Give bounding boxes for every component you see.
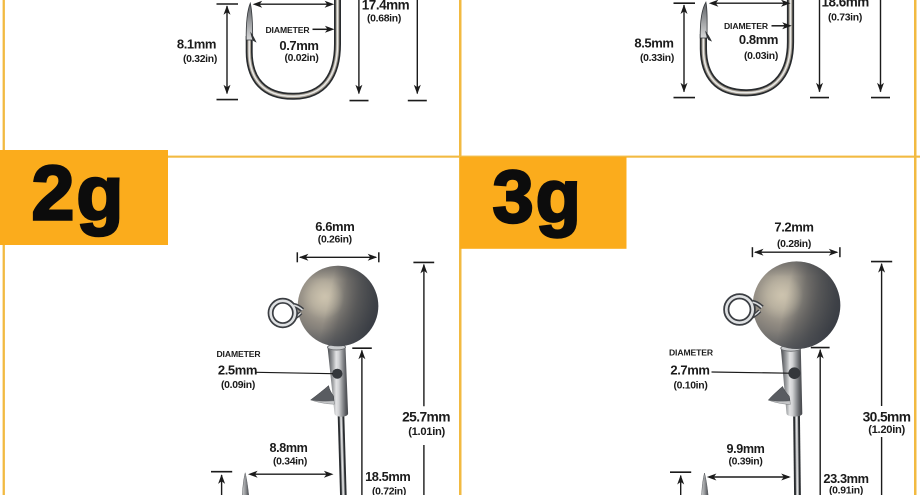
svg-text:18.6mm: 18.6mm xyxy=(822,0,870,10)
svg-text:(0.09in): (0.09in) xyxy=(221,380,255,391)
svg-text:DIAMETER: DIAMETER xyxy=(724,21,769,31)
svg-text:(0.03in): (0.03in) xyxy=(744,51,778,62)
svg-text:23.3mm: 23.3mm xyxy=(823,471,868,486)
svg-text:(0.26in): (0.26in) xyxy=(318,235,352,246)
svg-text:17.4mm: 17.4mm xyxy=(362,0,410,12)
svg-text:(0.68in): (0.68in) xyxy=(367,14,401,25)
svg-text:0.7mm: 0.7mm xyxy=(279,38,318,53)
svg-text:DIAMETER: DIAMETER xyxy=(265,25,310,35)
svg-text:(0.28in): (0.28in) xyxy=(777,239,811,250)
svg-text:(1.01in): (1.01in) xyxy=(408,426,445,438)
svg-text:6.6mm: 6.6mm xyxy=(315,219,354,234)
svg-text:DIAMETER: DIAMETER xyxy=(669,347,714,357)
svg-text:9.9mm: 9.9mm xyxy=(727,442,765,456)
svg-text:(0.72in): (0.72in) xyxy=(372,487,406,495)
svg-text:8.8mm: 8.8mm xyxy=(270,441,308,455)
svg-text:(0.34in): (0.34in) xyxy=(273,456,307,467)
svg-text:3g: 3g xyxy=(493,155,583,238)
svg-text:(0.33in): (0.33in) xyxy=(640,53,674,64)
svg-text:2.5mm: 2.5mm xyxy=(218,363,257,378)
svg-text:0.8mm: 0.8mm xyxy=(739,32,778,47)
svg-text:(0.73in): (0.73in) xyxy=(828,13,862,24)
svg-text:(0.91in): (0.91in) xyxy=(829,486,863,495)
svg-text:25.7mm: 25.7mm xyxy=(402,409,450,424)
svg-text:(0.32in): (0.32in) xyxy=(183,54,217,65)
svg-text:2.7mm: 2.7mm xyxy=(670,363,709,378)
svg-text:30.5mm: 30.5mm xyxy=(863,409,911,424)
svg-text:7.2mm: 7.2mm xyxy=(774,220,813,235)
svg-text:(0.02in): (0.02in) xyxy=(285,53,319,64)
svg-text:DIAMETER: DIAMETER xyxy=(216,349,261,359)
svg-text:8.5mm: 8.5mm xyxy=(634,36,673,51)
svg-text:(0.10in): (0.10in) xyxy=(674,380,708,391)
svg-text:(0.39in): (0.39in) xyxy=(729,457,763,468)
svg-text:(1.20in): (1.20in) xyxy=(868,424,905,436)
svg-text:2g: 2g xyxy=(32,151,126,237)
svg-text:8.1mm: 8.1mm xyxy=(177,37,216,52)
svg-text:18.5mm: 18.5mm xyxy=(365,469,410,484)
